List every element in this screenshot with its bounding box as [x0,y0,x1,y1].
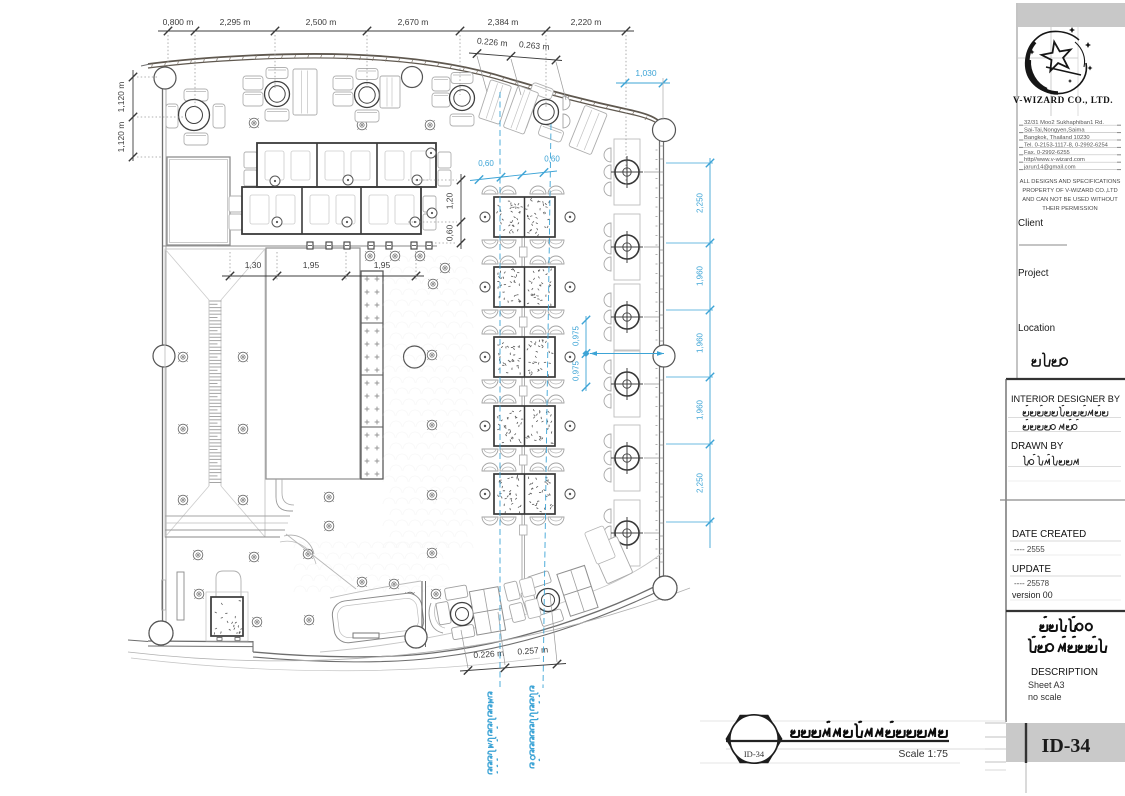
svg-text:version 00: version 00 [1012,590,1053,600]
svg-text:2,384 m: 2,384 m [488,17,519,27]
svg-text:1,960: 1,960 [696,265,705,286]
svg-text:1,30: 1,30 [245,260,262,270]
svg-text:0,60: 0,60 [544,155,560,164]
svg-text:1,20: 1,20 [445,192,455,209]
svg-text:1,120 m: 1,120 m [116,122,126,153]
svg-text:2,250: 2,250 [696,472,705,493]
svg-text:THEIR PERMISSION: THEIR PERMISSION [1042,206,1097,212]
svg-text:ID-34: ID-34 [744,749,765,759]
svg-text:2,500 m: 2,500 m [306,17,337,27]
svg-text:1,95: 1,95 [303,260,320,270]
svg-text:---- 2555: ---- 2555 [1014,545,1045,554]
svg-text:---- 25578: ---- 25578 [1014,579,1050,588]
svg-text:Fax. 0-2992-6255: Fax. 0-2992-6255 [1024,150,1070,156]
svg-text:jarun14@gmail.com: jarun14@gmail.com [1023,165,1076,171]
svg-text:1,95: 1,95 [374,260,391,270]
svg-text:2,295 m: 2,295 m [220,17,251,27]
svg-text:0,60: 0,60 [478,159,494,168]
svg-text:Tel. 0-2153-1117-8, 0-2992-625: Tel. 0-2153-1117-8, 0-2992-6254 [1024,142,1109,148]
svg-text:1,960: 1,960 [696,332,705,353]
svg-text:Sai-Tai,Nongyen,Saima: Sai-Tai,Nongyen,Saima [1024,128,1085,134]
svg-text:1,960: 1,960 [696,399,705,420]
svg-text:DESCRIPTION: DESCRIPTION [1031,667,1098,678]
svg-text:AND CAN NOT BE USED WITHOUT: AND CAN NOT BE USED WITHOUT [1022,197,1118,203]
svg-text:http//www.v-wizard.com: http//www.v-wizard.com [1024,157,1085,163]
svg-text:V-WIZARD CO., LTD.: V-WIZARD CO., LTD. [1013,95,1113,105]
svg-text:Scale 1:75: Scale 1:75 [898,748,948,760]
svg-text:Project: Project [1018,268,1049,279]
svg-text:Client: Client [1018,218,1043,229]
svg-text:1,120 m: 1,120 m [116,82,126,113]
svg-text:2,670 m: 2,670 m [398,17,429,27]
svg-text:PROPERTY OF V-WIZARD CO.,LTD: PROPERTY OF V-WIZARD CO.,LTD [1022,188,1117,194]
svg-text:0,60: 0,60 [445,224,455,241]
svg-text:2,250: 2,250 [696,192,705,213]
svg-text:32/31 Moo2 Sukhaphiban1 Rd.: 32/31 Moo2 Sukhaphiban1 Rd. [1024,120,1104,126]
svg-text:ID-34: ID-34 [1042,735,1091,757]
svg-text:DATE CREATED: DATE CREATED [1012,529,1086,540]
svg-text:1,030: 1,030 [635,68,657,78]
svg-text:0,975: 0,975 [572,325,581,346]
svg-text:no scale: no scale [1028,692,1062,702]
svg-text:ALL DESIGNS AND SPECIFICATIONS: ALL DESIGNS AND SPECIFICATIONS [1020,179,1121,185]
svg-text:2,220 m: 2,220 m [571,17,602,27]
svg-text:UPDATE: UPDATE [1012,564,1051,575]
svg-text:DRAWN BY: DRAWN BY [1011,441,1064,452]
svg-text:0,800 m: 0,800 m [163,17,194,27]
svg-text:0,975: 0,975 [572,360,581,381]
svg-text:INTERIOR DESIGNER BY: INTERIOR DESIGNER BY [1011,393,1121,404]
svg-text:Location: Location [1018,323,1055,334]
svg-text:Sheet A3: Sheet A3 [1028,680,1065,690]
svg-text:Bangkok, Thailand 10230: Bangkok, Thailand 10230 [1024,135,1090,141]
